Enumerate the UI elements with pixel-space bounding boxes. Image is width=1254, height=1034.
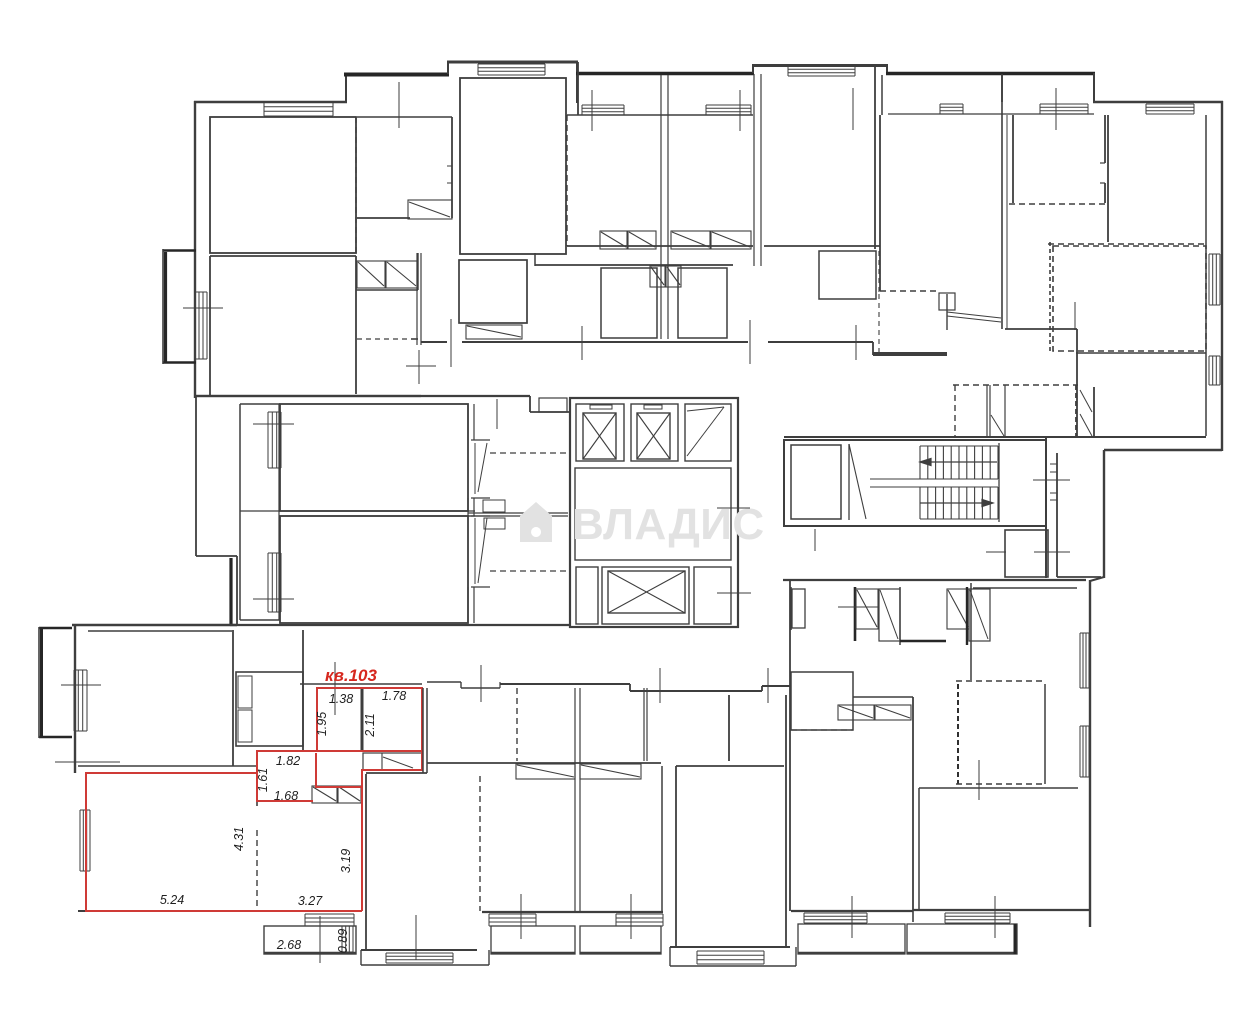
- svg-text:5.24: 5.24: [160, 893, 184, 907]
- svg-text:0.89: 0.89: [336, 929, 350, 953]
- svg-text:1.82: 1.82: [276, 754, 300, 768]
- svg-text:кв.103: кв.103: [325, 666, 378, 685]
- svg-text:1.38: 1.38: [329, 692, 353, 706]
- svg-text:3.19: 3.19: [339, 849, 353, 873]
- svg-text:ВЛАДИС: ВЛАДИС: [572, 500, 765, 549]
- svg-text:1.61: 1.61: [256, 768, 270, 792]
- svg-text:1.68: 1.68: [274, 789, 298, 803]
- svg-text:2.11: 2.11: [363, 713, 377, 737]
- svg-text:1.78: 1.78: [382, 689, 406, 703]
- svg-text:2.68: 2.68: [276, 938, 301, 952]
- svg-text:4.31: 4.31: [232, 827, 246, 851]
- svg-text:3.27: 3.27: [298, 894, 323, 908]
- svg-text:1.95: 1.95: [315, 712, 329, 736]
